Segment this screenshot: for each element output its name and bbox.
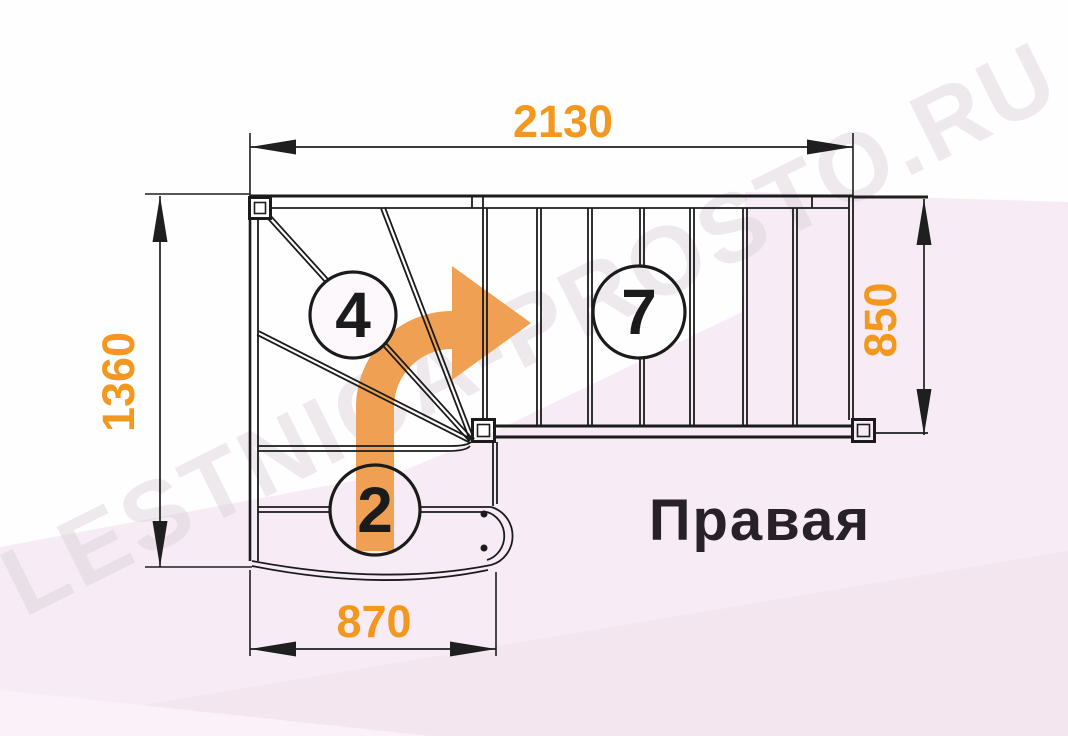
winder-step-count: 4 [335, 279, 371, 351]
dim-label-right: 850 [855, 282, 906, 357]
lower-flight-step-count: 2 [357, 474, 393, 546]
dim-label-bottom: 870 [336, 596, 411, 647]
stair-plan-page: LESTNICA-PROSTO.RU [0, 0, 1068, 736]
upper-flight-step-count: 7 [621, 276, 657, 348]
dim-label-top: 2130 [513, 96, 613, 147]
plan-title: Правая [649, 488, 871, 553]
dim-label-left: 1360 [93, 332, 144, 432]
stair-plan-diagram: LESTNICA-PROSTO.RU [0, 0, 1068, 736]
tread-dot [481, 545, 488, 552]
tread-dot [481, 511, 488, 518]
